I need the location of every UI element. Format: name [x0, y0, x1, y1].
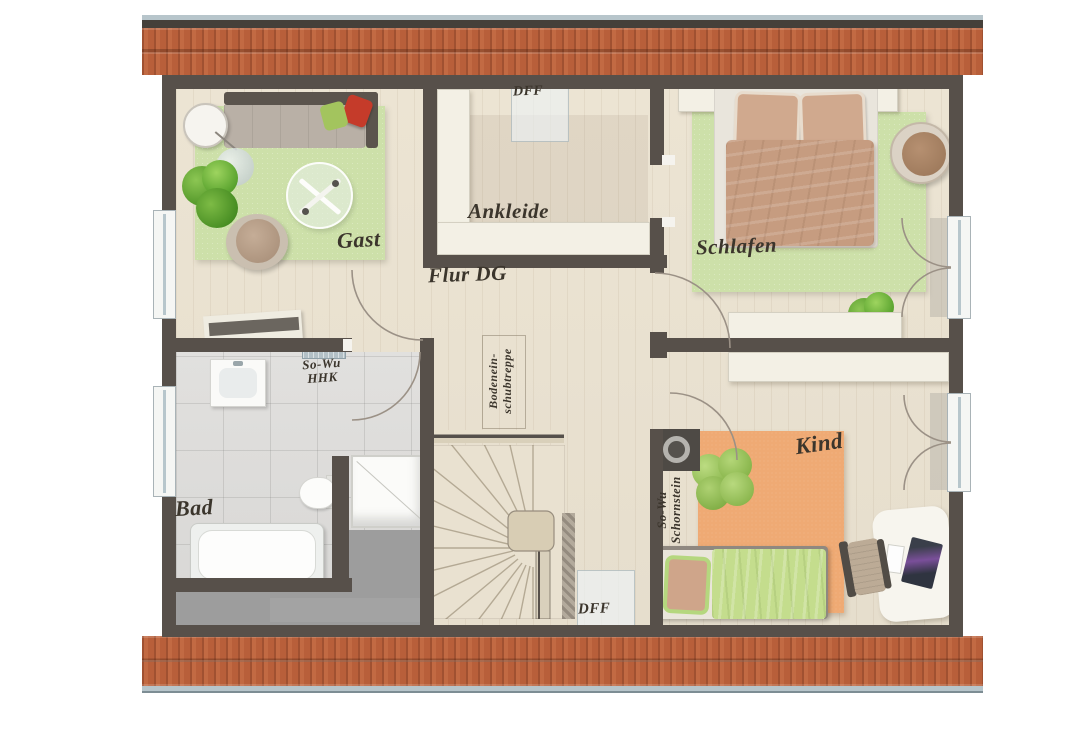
room-label-gast: Gast	[336, 226, 381, 254]
kind-door-arc	[670, 393, 737, 460]
label-sowu-schornstein: So-Wu Schornstein	[655, 455, 689, 565]
room-label-schlafen: Schlafen	[696, 233, 778, 261]
schlafen-balcony-arc-lower	[902, 268, 951, 317]
label-treppe-line2: schubtreppe	[500, 326, 514, 436]
label-sowu-hhk: So-Wu HHK	[295, 355, 349, 387]
label-dff-top: DFF	[513, 84, 544, 99]
label-dff-bottom: DFF	[578, 601, 611, 616]
room-label-bad: Bad	[174, 494, 213, 522]
floor-plan: Gast Ankleide Flur DG Schlafen Bad Kind …	[0, 0, 1090, 731]
door-arcs	[0, 0, 1090, 731]
kind-balcony-arc-upper	[904, 395, 951, 442]
label-treppe-line1: Bodenein-	[486, 326, 500, 436]
label-sowu-schornstein-line2: Schornstein	[669, 455, 683, 565]
gast-door-arc	[352, 270, 423, 340]
label-bodeneinschubtreppe: Bodenein- schubtreppe	[486, 326, 520, 436]
schlafen-balcony-arc-upper	[902, 218, 951, 267]
label-sowu-schornstein-line1: So-Wu	[655, 455, 669, 565]
schlafen-door-arc	[655, 273, 730, 348]
room-label-ankleide: Ankleide	[468, 199, 549, 224]
kind-balcony-arc-lower	[904, 443, 951, 490]
bad-door-arc	[352, 352, 420, 420]
room-label-flur: Flur DG	[428, 261, 508, 289]
